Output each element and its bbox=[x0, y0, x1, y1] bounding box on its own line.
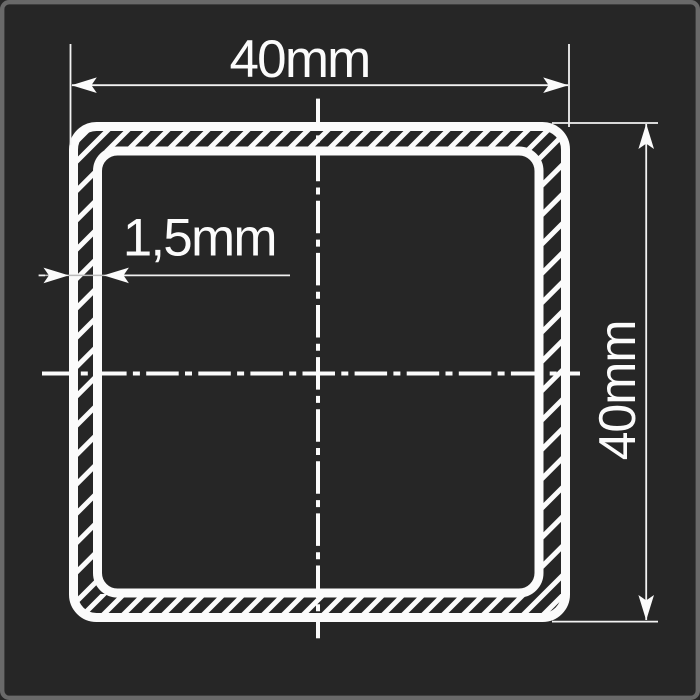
svg-text:40mm: 40mm bbox=[589, 321, 647, 461]
svg-text:40mm: 40mm bbox=[229, 30, 369, 89]
svg-text:1,5mm: 1,5mm bbox=[123, 208, 276, 267]
